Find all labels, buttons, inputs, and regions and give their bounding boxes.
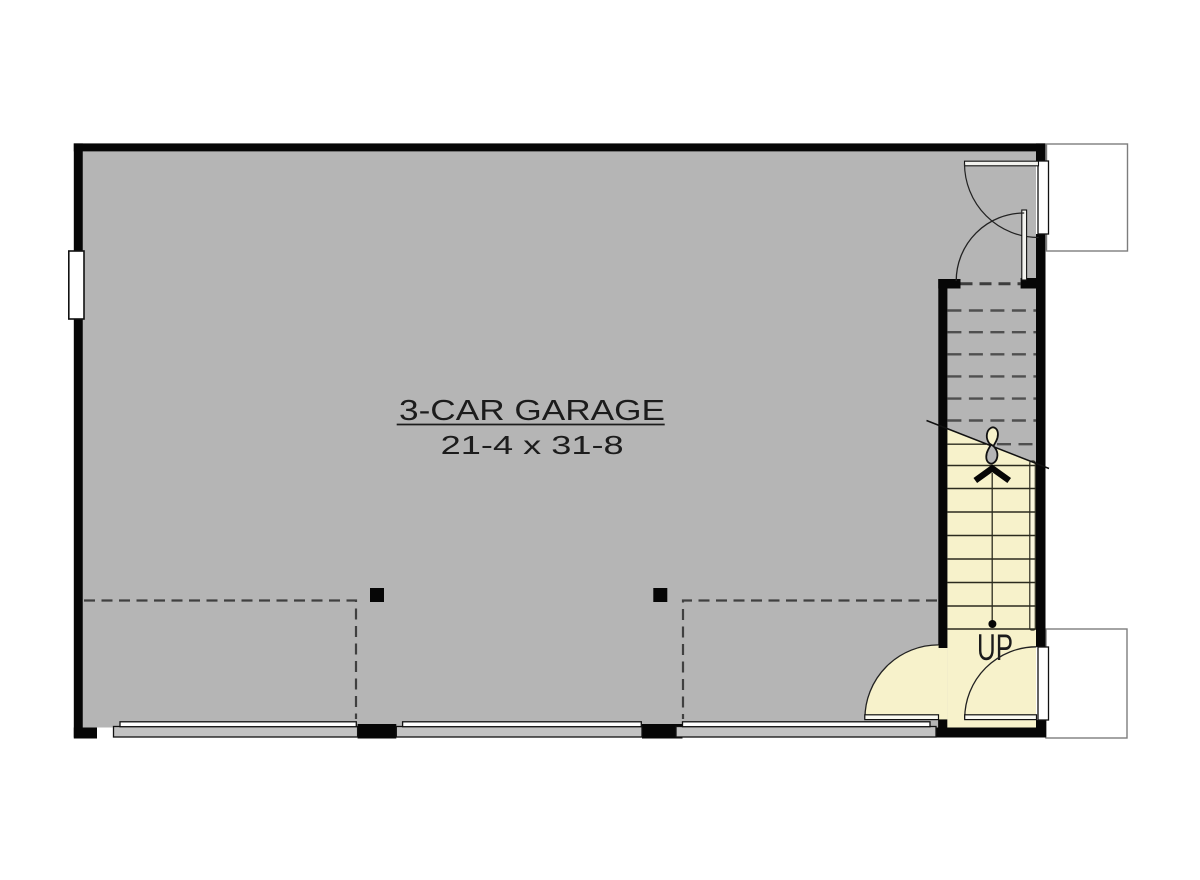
svg-text:3-CAR GARAGE: 3-CAR GARAGE — [399, 395, 665, 427]
svg-text:UP: UP — [977, 627, 1013, 668]
svg-text:21-4 x 31-8: 21-4 x 31-8 — [441, 430, 624, 460]
